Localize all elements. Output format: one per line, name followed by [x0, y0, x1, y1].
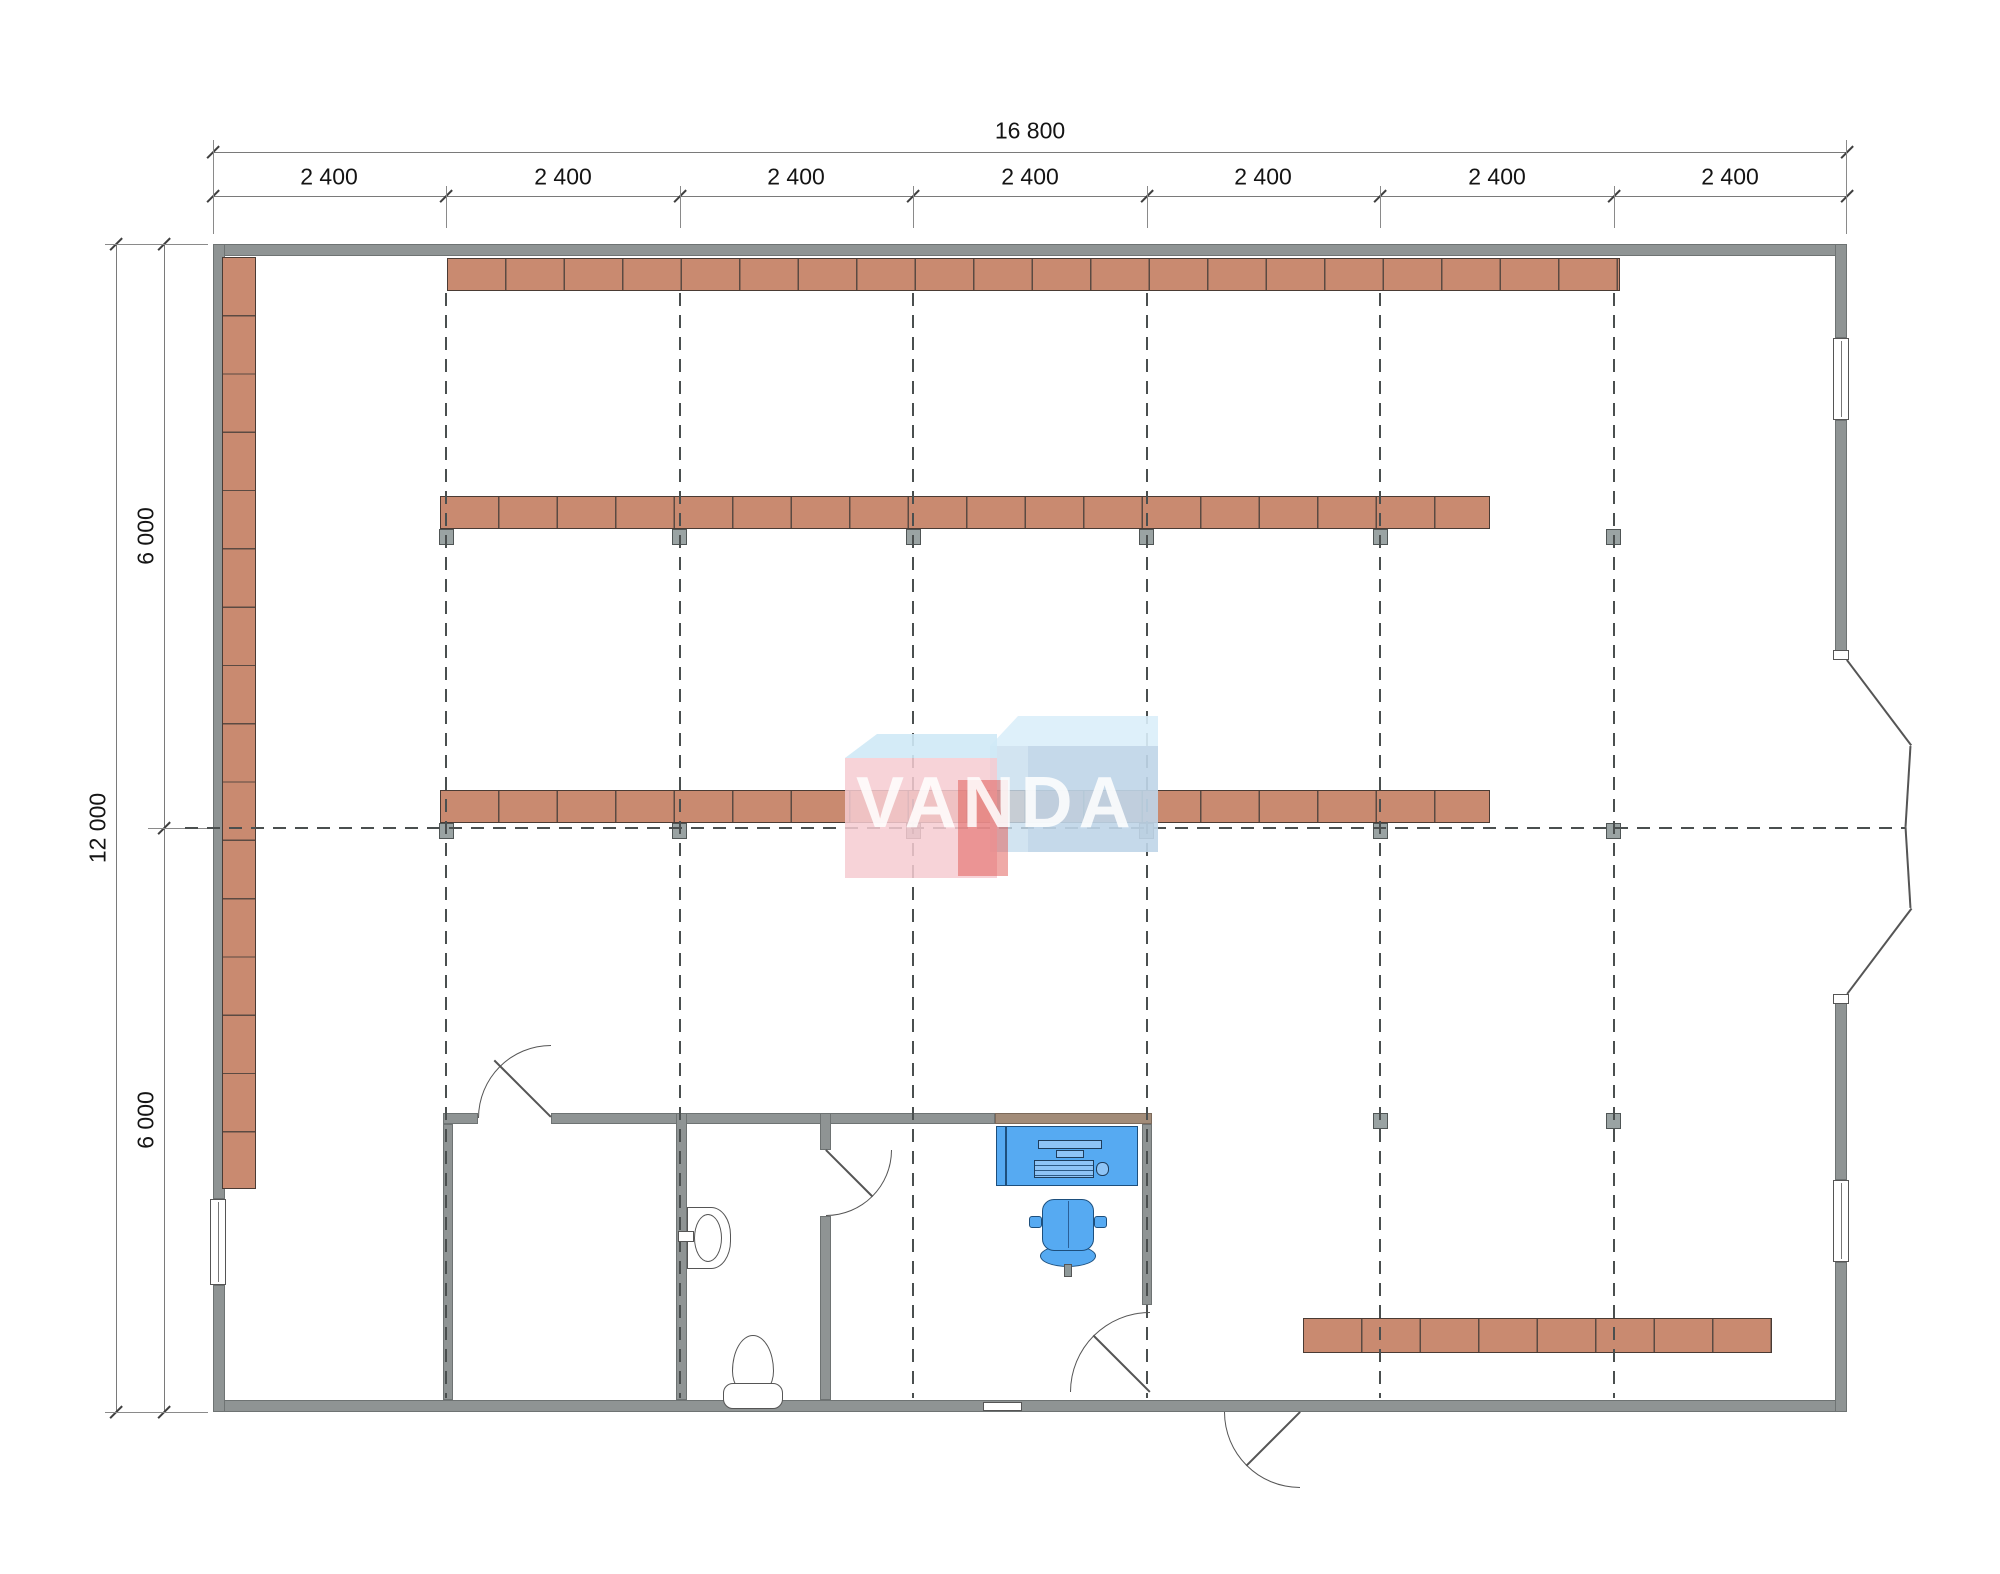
chair-stem-symbol — [1064, 1264, 1072, 1277]
window-symbol — [210, 1199, 226, 1285]
window-symbol — [1833, 338, 1849, 420]
grid-line — [445, 293, 447, 1398]
witness-line — [1380, 186, 1381, 228]
grid-line — [1379, 293, 1381, 1398]
toilet-tank-symbol — [723, 1383, 783, 1409]
witness-line — [1846, 140, 1847, 234]
monitor-stand-symbol — [1056, 1150, 1084, 1158]
dimension-line-bays — [213, 196, 1847, 197]
wall-right-4 — [1835, 1262, 1847, 1412]
dimension-label-bay: 2 400 — [534, 164, 592, 191]
witness-line — [1147, 186, 1148, 228]
witness-line — [680, 186, 681, 228]
middle-shelf-upper — [440, 496, 1490, 529]
dimension-label-total-width: 16 800 — [995, 118, 1065, 145]
vanda-watermark-text: VANDA — [856, 762, 1137, 844]
window-symbol — [1833, 1180, 1849, 1262]
door-jamb-cap — [1833, 994, 1849, 1004]
wall-right-3 — [1835, 996, 1847, 1180]
double-door-bottom-leaf — [1846, 908, 1912, 994]
sink-basin-symbol — [694, 1214, 722, 1262]
dimension-label-bay: 2 400 — [767, 164, 825, 191]
dimension-label-bay: 2 400 — [1001, 164, 1059, 191]
monitor-symbol — [1038, 1140, 1102, 1149]
wall-right-1 — [1835, 244, 1847, 338]
roomblock-top-wall-a — [443, 1113, 478, 1124]
logo-blue-box-top — [990, 716, 1158, 746]
witness-line — [105, 1412, 208, 1413]
wc-right-partition-top — [820, 1113, 831, 1150]
floor-plan-canvas: 16 800 2 400 2 400 2 400 2 400 2 400 2 4… — [0, 0, 2000, 1574]
chair-armrest-left — [1029, 1216, 1042, 1228]
witness-line — [213, 140, 214, 234]
double-door-top-leaf — [1846, 659, 1912, 745]
dimension-label-bay: 2 400 — [1234, 164, 1292, 191]
chair-armrest-right — [1094, 1216, 1107, 1228]
wc-right-partition-bottom — [820, 1216, 831, 1400]
sink-faucet-symbol — [678, 1231, 694, 1242]
left-wall-shelf — [222, 257, 256, 1189]
bottom-right-shelf — [1303, 1318, 1772, 1353]
chair-seat-symbol — [1042, 1199, 1094, 1251]
dimension-line-total-height — [116, 244, 117, 1412]
logo-pink-box-top — [845, 734, 997, 758]
roomblock-top-wall-counter — [995, 1113, 1152, 1124]
roomblock-top-wall-b — [551, 1113, 995, 1124]
witness-line — [913, 186, 914, 228]
dimension-label-total-height: 12 000 — [85, 793, 112, 863]
double-door-top-swing — [1905, 746, 1912, 827]
wall-top — [213, 244, 1847, 256]
dimension-label-half: 6 000 — [133, 507, 160, 565]
dimension-label-bay: 2 400 — [300, 164, 358, 191]
grid-line — [1613, 293, 1615, 1398]
dimension-label-bay: 2 400 — [1468, 164, 1526, 191]
threshold-vent — [983, 1402, 1022, 1411]
dimension-label-half: 6 000 — [133, 1091, 160, 1149]
keyboard-symbol — [1034, 1160, 1094, 1178]
wall-bottom — [213, 1400, 1847, 1412]
window-pane-line — [1841, 1183, 1842, 1259]
desk-edge-line — [1005, 1127, 1007, 1185]
witness-line — [105, 244, 208, 245]
double-door-bottom-swing — [1905, 827, 1912, 908]
chair-seat-line — [1068, 1201, 1069, 1248]
wc-left-partition — [676, 1113, 687, 1400]
witness-line — [1614, 186, 1615, 228]
dimension-line-total-width — [213, 152, 1847, 153]
witness-line — [446, 186, 447, 228]
mouse-symbol — [1096, 1162, 1109, 1176]
top-wall-shelf — [447, 258, 1620, 291]
window-pane-line — [218, 1202, 219, 1282]
wall-left-lower — [213, 1285, 225, 1412]
window-pane-line — [1841, 341, 1842, 417]
wall-right-2 — [1835, 420, 1847, 658]
dimension-label-bay: 2 400 — [1701, 164, 1759, 191]
